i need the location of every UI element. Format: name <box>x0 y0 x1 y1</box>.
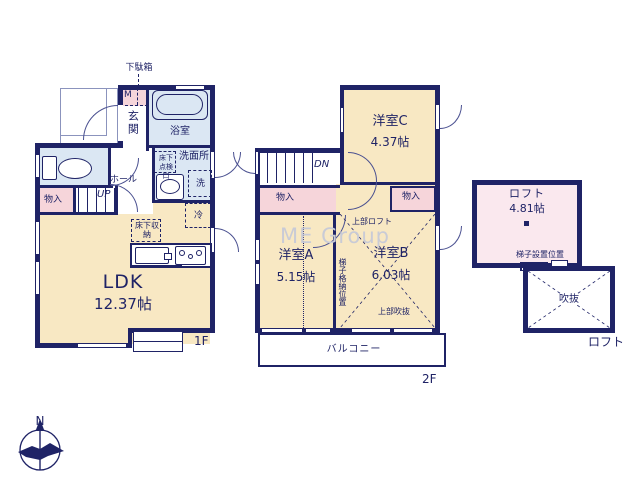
room-b-exterior-arc <box>440 226 462 250</box>
toilet-bowl-icon <box>58 158 92 179</box>
balcony: バルコニー <box>258 333 446 367</box>
meter-label: M <box>124 90 132 100</box>
shoe-cabinet-label: 下駄箱 <box>125 63 152 73</box>
ladder-position-label: 梯子設置位置 <box>516 251 564 260</box>
underfloor-hatch-label: 床下点検口 <box>156 154 176 181</box>
room-b-size-label: 6.03帖 <box>372 269 411 282</box>
room-c-name-label: 洋室C <box>372 115 407 130</box>
room-a-name-label: 洋室A <box>279 249 314 264</box>
stairs-up-label: UP <box>97 189 110 200</box>
balcony-label: バルコニー <box>327 344 382 355</box>
void-box: 吹抜 <box>523 266 615 333</box>
washer-box: 洗 <box>188 170 212 197</box>
window <box>255 240 260 260</box>
wall-segment <box>146 85 149 151</box>
loft-name-label: ロフト <box>509 188 545 200</box>
window <box>78 343 126 348</box>
stairs-down <box>258 151 320 183</box>
window <box>35 262 40 294</box>
floor2-label: 2F <box>422 373 437 386</box>
void-label: 吹抜 <box>557 294 581 305</box>
ladder-icon <box>551 260 568 267</box>
upper-void-label: 上部吹抜 <box>378 308 410 317</box>
compass-north-label: N <box>36 414 45 428</box>
storage2f-left-floor <box>258 187 338 213</box>
ldk-name-label: LDK <box>103 272 144 293</box>
ldk-size-label: 12.37帖 <box>94 296 152 313</box>
storage2f-left-label: 物入 <box>276 193 294 203</box>
floor-plan-canvas: 床下点検口 洗 冷 床下収納 下駄箱 M 玄関 浴室 洗面所 物入 ホール UP… <box>0 0 640 480</box>
room-c-exterior-arc <box>440 105 462 129</box>
wall-segment <box>340 85 344 185</box>
bathtub-icon <box>152 90 208 120</box>
storage1f-label: 物入 <box>44 195 62 205</box>
wall-segment <box>340 85 440 90</box>
toilet-icon <box>42 156 57 180</box>
stairwell-window-arc <box>233 152 255 174</box>
genkan-label: 玄関 <box>126 110 138 136</box>
entrance-door-opening <box>118 105 123 141</box>
washer-label: 洗 <box>196 179 205 189</box>
faucet-icon <box>164 253 172 260</box>
washroom-label: 洗面所 <box>179 151 209 162</box>
loft-size-label: 4.81帖 <box>509 203 545 215</box>
underfloor-storage-label: 床下収納 <box>135 222 159 240</box>
bathroom-label: 浴室 <box>170 126 190 137</box>
hall-label: ホール <box>110 175 137 185</box>
wall-segment <box>148 145 210 148</box>
floor1-label: 1F <box>194 335 209 348</box>
underfloor-storage-box: 床下収納 <box>131 219 161 242</box>
stove-icon <box>175 246 206 265</box>
counter-edge <box>130 265 182 268</box>
wall-segment <box>35 212 118 215</box>
stairs-down-label: DN <box>314 159 329 170</box>
bay-window <box>133 341 183 352</box>
window <box>340 108 344 132</box>
compass-icon: N <box>12 412 70 476</box>
fridge-label: 冷 <box>194 211 203 221</box>
loft-floor-label: ロフト <box>588 336 624 349</box>
underfloor-hatch-box: 床下点検口 <box>154 151 176 173</box>
watermark: ME Group <box>280 224 390 248</box>
window <box>35 155 40 177</box>
ladder-icon <box>520 262 548 271</box>
loft-marker <box>524 221 529 226</box>
fridge-box: 冷 <box>185 203 211 228</box>
window <box>35 222 40 254</box>
storage2f-right-label: 物入 <box>402 192 420 202</box>
ldk-exterior-door-arc <box>215 228 239 252</box>
shoe-cabinet-leader <box>138 74 139 87</box>
ladder-storage-label: 梯子格納位置 <box>337 258 346 306</box>
window <box>255 264 260 284</box>
room-a-size-label: 5.15帖 <box>277 271 316 284</box>
wall-segment <box>258 185 340 188</box>
meter-box-divider <box>137 88 138 105</box>
wall-segment <box>73 185 76 215</box>
room-c-size-label: 4.37帖 <box>371 136 410 149</box>
room-b-name-label: 洋室B <box>374 247 409 262</box>
